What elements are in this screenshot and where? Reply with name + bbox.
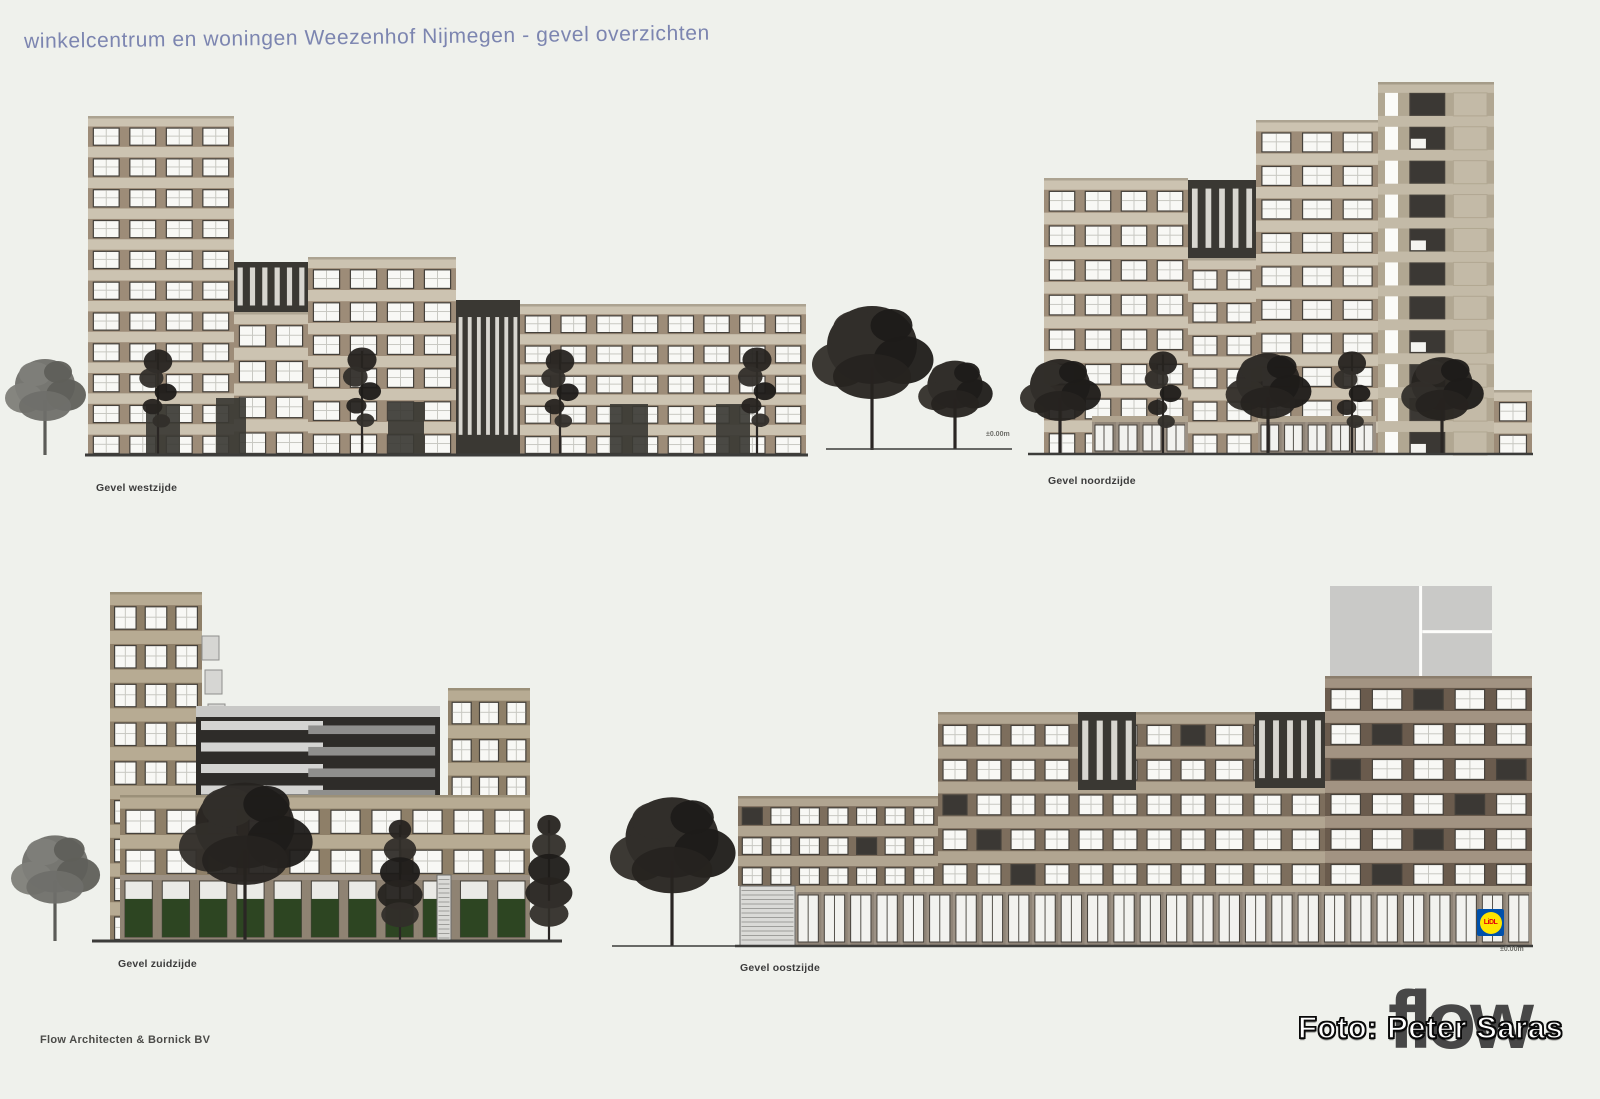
sheet: { "sheet": { "title": "winkelcentrum en …	[0, 0, 1600, 1099]
level-annotation-mid: ±0.00m	[986, 431, 1010, 438]
label-gevel-westzijde: Gevel westzijde	[96, 482, 177, 494]
label-gevel-noordzijde: Gevel noordzijde	[1048, 475, 1136, 487]
lidl-logo: LiDL	[1477, 909, 1504, 936]
label-gevel-zuidzijde: Gevel zuidzijde	[118, 958, 197, 970]
firm-credit: Flow Architecten & Bornick BV	[40, 1034, 210, 1046]
label-gevel-oostzijde: Gevel oostzijde	[740, 962, 820, 974]
lidl-logo-text: LiDL	[1484, 919, 1498, 926]
level-annotation-east: ±0.00m	[1500, 946, 1524, 953]
buildings	[88, 82, 1532, 946]
elevation-drawings	[0, 0, 1600, 1099]
photo-credit: Foto: Peter Saras	[1298, 1010, 1563, 1046]
lidl-logo-circle: LiDL	[1480, 912, 1502, 934]
